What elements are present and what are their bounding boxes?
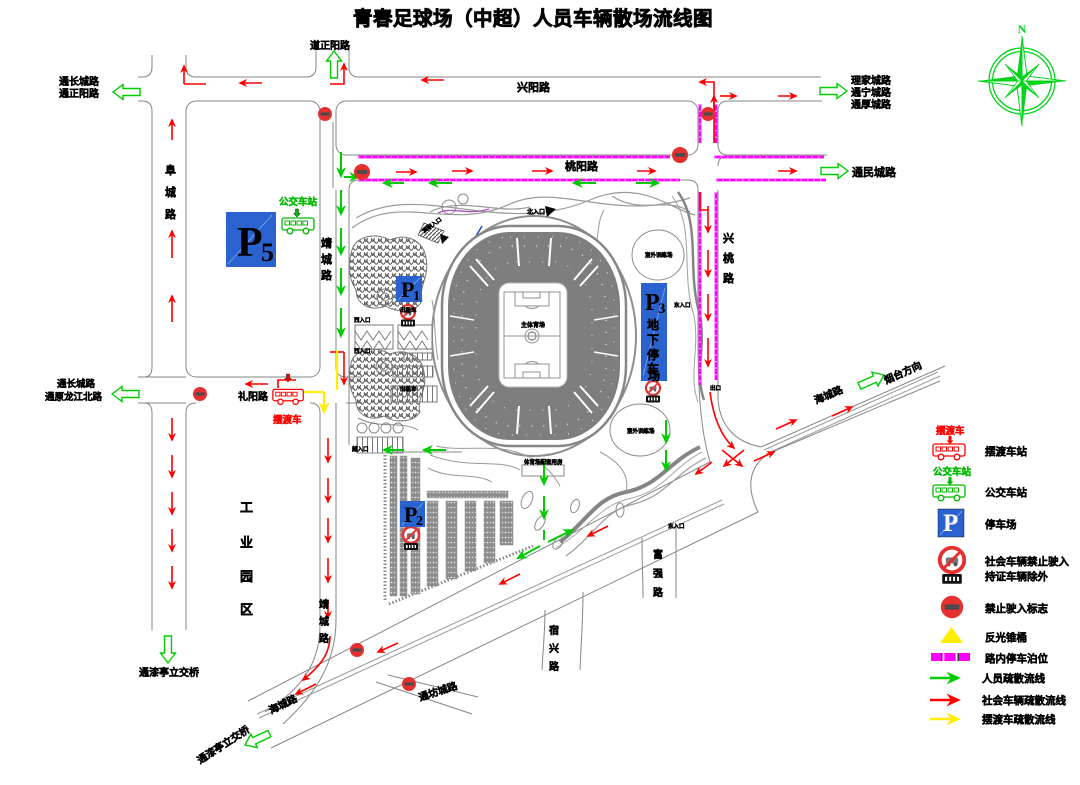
svg-text:公交车站: 公交车站 [279,196,318,208]
svg-text:区: 区 [240,602,253,617]
svg-text:下: 下 [647,333,659,347]
svg-text:通漆亭立交桥: 通漆亭立交桥 [139,666,200,679]
svg-text:人员疏散流线: 人员疏散流线 [982,672,1045,685]
svg-text:靖: 靖 [319,598,329,611]
svg-text:N: N [1018,22,1027,36]
svg-text:城: 城 [319,615,329,628]
svg-text:摆渡车站: 摆渡车站 [985,445,1027,458]
svg-text:2: 2 [416,514,423,529]
svg-text:路: 路 [319,632,330,645]
svg-text:东入口: 东入口 [668,522,685,530]
svg-text:出口: 出口 [710,384,721,392]
svg-text:道正阳路: 道正阳路 [310,39,351,52]
svg-text:通原龙江北路: 通原龙江北路 [45,391,103,403]
svg-text:5: 5 [261,238,274,267]
svg-text:通宁城路: 通宁城路 [851,86,892,99]
svg-text:桃阳路: 桃阳路 [565,159,599,173]
svg-text:理家城路: 理家城路 [851,74,892,87]
svg-text:出租车: 出租车 [400,306,417,314]
svg-text:通正阳路: 通正阳路 [59,87,100,100]
svg-text:摆渡车: 摆渡车 [936,425,965,437]
svg-text:P: P [943,510,958,537]
svg-text:路内停车泊位: 路内停车泊位 [985,652,1048,665]
svg-text:富: 富 [653,548,663,561]
svg-text:路: 路 [653,586,664,599]
svg-text:停: 停 [647,347,659,362]
svg-text:通厚城路: 通厚城路 [851,98,892,111]
svg-text:摆渡车疏散流线: 摆渡车疏散流线 [982,713,1056,726]
svg-text:摆渡车: 摆渡车 [273,414,302,426]
svg-text:路: 路 [549,660,560,673]
svg-text:主体育场: 主体育场 [521,321,545,329]
svg-text:礼阳路: 礼阳路 [238,390,269,403]
svg-text:路: 路 [723,271,735,285]
svg-text:工: 工 [240,500,253,515]
svg-text:通长城路: 通长城路 [57,378,96,390]
svg-text:出租车: 出租车 [400,385,417,393]
svg-text:室外训练场: 室外训练场 [627,427,655,435]
svg-text:青春足球场（中超）人员车辆散场流线图: 青春足球场（中超）人员车辆散场流线图 [353,7,713,30]
svg-text:1: 1 [413,289,420,304]
svg-text:兴: 兴 [549,642,559,655]
svg-text:社会车辆禁止驶入: 社会车辆禁止驶入 [984,555,1069,568]
svg-text:停车场: 停车场 [985,518,1017,531]
svg-text:东入口: 东入口 [674,301,691,309]
svg-text:阜: 阜 [165,163,176,177]
svg-text:场: 场 [648,369,660,383]
svg-text:P: P [237,220,263,266]
svg-text:靖: 靖 [321,236,332,250]
svg-text:城: 城 [165,185,176,199]
svg-text:路: 路 [165,207,177,221]
svg-text:持证车辆除外: 持证车辆除外 [985,570,1048,583]
svg-text:城: 城 [321,252,332,266]
svg-text:北入口: 北入口 [527,208,545,216]
svg-text:桃: 桃 [723,251,734,265]
svg-text:业: 业 [240,535,253,550]
svg-text:通民城路: 通民城路 [852,165,897,179]
svg-text:体育场配套用房: 体育场配套用房 [524,458,563,466]
svg-text:西入口: 西入口 [354,316,371,324]
svg-text:3: 3 [658,301,666,317]
svg-text:宿: 宿 [549,624,559,637]
svg-text:社会车辆疏散流线: 社会车辆疏散流线 [981,694,1066,707]
svg-text:通长城路: 通长城路 [59,75,100,88]
svg-text:西入口: 西入口 [354,347,371,355]
svg-text:兴: 兴 [723,231,734,245]
svg-text:园: 园 [240,569,253,584]
svg-text:公交车站: 公交车站 [933,466,972,478]
svg-text:公交车站: 公交车站 [985,486,1027,499]
svg-text:反光锥桶: 反光锥桶 [985,631,1027,644]
svg-text:越入口: 越入口 [351,445,369,453]
svg-text:地: 地 [647,317,659,332]
svg-text:兴阳路: 兴阳路 [517,80,551,94]
svg-text:室外训练场: 室外训练场 [645,251,673,259]
svg-text:路: 路 [321,268,333,282]
svg-text:禁止驶入标志: 禁止驶入标志 [984,602,1048,615]
svg-text:强: 强 [653,568,663,580]
